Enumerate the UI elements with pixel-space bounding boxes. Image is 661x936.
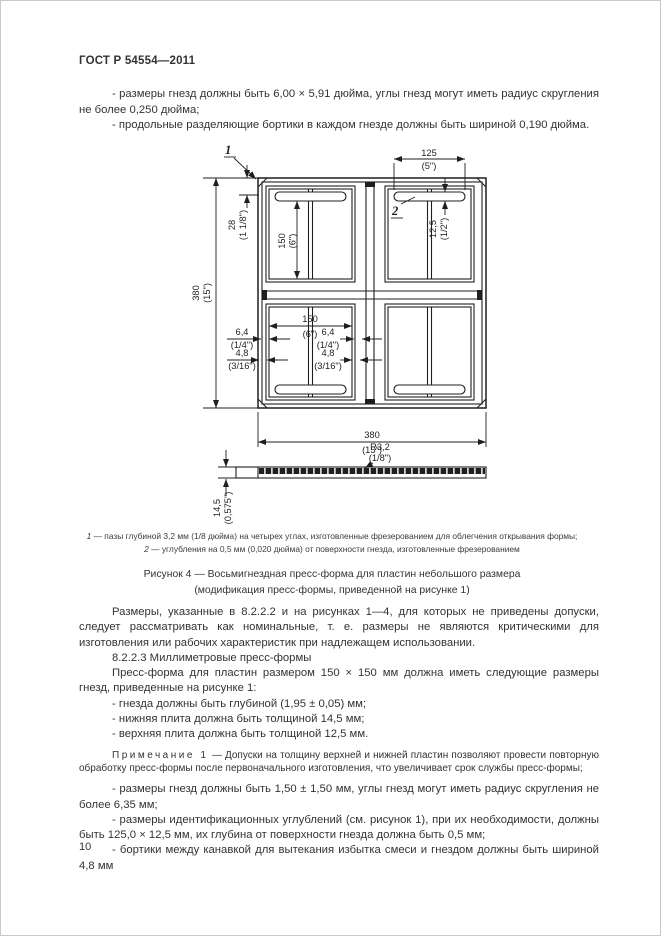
dim-overall-width-mm: 380 xyxy=(364,430,380,440)
dim-cavity-height-in: (6") xyxy=(288,234,298,249)
dim-plate-thickness: 14,5 (0,575") xyxy=(212,450,237,524)
dim-rib-right-in: (3/16") xyxy=(314,361,342,371)
callout-1-corner-groove: 1 xyxy=(224,143,256,179)
metric-bullet: - бортики между канавкой для вытекания и… xyxy=(79,843,599,874)
intro-bullet: - продольные разделяющие бортики в каждо… xyxy=(79,118,599,134)
note-paragraph: Примечание 1 — Допуски на толщину верхне… xyxy=(79,749,599,777)
dim-plate-thickness-mm: 14,5 xyxy=(212,499,222,517)
dim-recess-width-mm: 125 xyxy=(421,148,437,158)
footnote-2-text: — углубления на 0,5 мм (0,020 дюйма) от … xyxy=(149,544,520,554)
intro-bullet: - размеры гнезд должны быть 6,00 × 5,91 … xyxy=(79,87,599,118)
callout-1-label: 1 xyxy=(225,143,231,157)
note-label: Примечание 1 xyxy=(112,750,209,761)
figure-4-drawing: 1 125 (5") 12,5 (1/2") 2 28 (1 xyxy=(189,141,519,533)
dim-cavity-height-mm: 150 xyxy=(277,233,287,249)
dim-cavity-height: 150 (6") xyxy=(277,201,298,279)
dim-cavity-width-mm: 150 xyxy=(302,314,318,324)
metric-bullet: - размеры идентификационных углублений (… xyxy=(79,813,599,844)
metric-bullet: - верхняя плита должна быть толщиной 12,… xyxy=(79,727,599,742)
dim-recess-width: 125 (5") xyxy=(394,148,465,190)
dim-cavity-width-in: (6") xyxy=(303,329,318,339)
dim-corner-radius-in: (1/8") xyxy=(369,453,391,463)
dim-rib-right-mm: 4,8 xyxy=(322,348,335,358)
metric-bullet: - размеры гнезд должны быть 1,50 ± 1,50 … xyxy=(79,782,599,813)
dim-cavity-width: 150 (6") xyxy=(269,309,352,339)
mold-top-view xyxy=(258,178,486,408)
metric-bullet: - гнезда должны быть глубиной (1,95 ± 0,… xyxy=(79,697,599,712)
dim-recess-offset-mm: 12,5 xyxy=(428,220,438,238)
paragraph-metric-intro: Пресс-форма для пластин размером 150 × 1… xyxy=(79,666,599,697)
dim-rib-left-in: (3/16") xyxy=(228,361,256,371)
body-text: Размеры, указанные в 8.2.2.2 и на рисунк… xyxy=(79,605,599,874)
page-number: 10 xyxy=(79,841,91,853)
metric-bullet: - нижняя плита должна быть толщиной 14,5… xyxy=(79,712,599,727)
dim-plate-thickness-in: (0,575") xyxy=(223,492,233,525)
dim-rim-left-mm: 6,4 xyxy=(236,327,249,337)
figure-caption: Рисунок 4 — Восьмигнездная пресс-форма д… xyxy=(71,567,593,598)
dim-edge-offset-in: (1 1/8") xyxy=(238,210,248,240)
dim-overall-height-in: (15") xyxy=(202,283,212,303)
dim-recess-offset-in: (1/2") xyxy=(439,218,449,240)
mold-side-view xyxy=(236,467,486,478)
dim-edge-offset-mm: 28 xyxy=(227,220,237,230)
cavity-bottom-right xyxy=(385,304,474,400)
paragraph-tolerances: Размеры, указанные в 8.2.2.2 и на рисунк… xyxy=(79,605,599,651)
dim-recess-width-in: (5") xyxy=(422,161,437,171)
section-heading: 8.2.2.3 Миллиметровые пресс-формы xyxy=(79,651,599,666)
dim-rib-left-mm: 4,8 xyxy=(236,348,249,358)
dim-corner-radius-mm: R3,2 xyxy=(370,442,390,452)
page-header: ГОСТ Р 54554—2011 xyxy=(79,55,195,67)
figure-footnote-1: 1 — пазы глубиной 3,2 мм (1/8 дюйма) на … xyxy=(71,530,593,543)
callout-2-label: 2 xyxy=(391,204,398,218)
figure-caption-line2: (модификация пресс-формы, приведенной на… xyxy=(71,583,593,599)
footnote-1-text: — пазы глубиной 3,2 мм (1/8 дюйма) на че… xyxy=(91,531,577,541)
figure-caption-line1: Рисунок 4 — Восьмигнездная пресс-форма д… xyxy=(71,567,593,583)
intro-paragraphs: - размеры гнезд должны быть 6,00 × 5,91 … xyxy=(79,87,599,134)
dim-rim-right-mm: 6,4 xyxy=(322,327,335,337)
dim-rib-right: 4,8 (3/16") xyxy=(314,348,382,371)
figure-footnotes: 1 — пазы глубиной 3,2 мм (1/8 дюйма) на … xyxy=(71,530,593,556)
figure-footnote-2: 2 — углубления на 0,5 мм (0,020 дюйма) о… xyxy=(71,543,593,556)
dim-overall-height-mm: 380 xyxy=(191,285,201,301)
document-page: ГОСТ Р 54554—2011 - размеры гнезд должны… xyxy=(0,0,661,936)
dim-rim-right: 6,4 (1/4") xyxy=(317,327,382,350)
dim-edge-offset: 28 (1 1/8") xyxy=(227,165,259,240)
